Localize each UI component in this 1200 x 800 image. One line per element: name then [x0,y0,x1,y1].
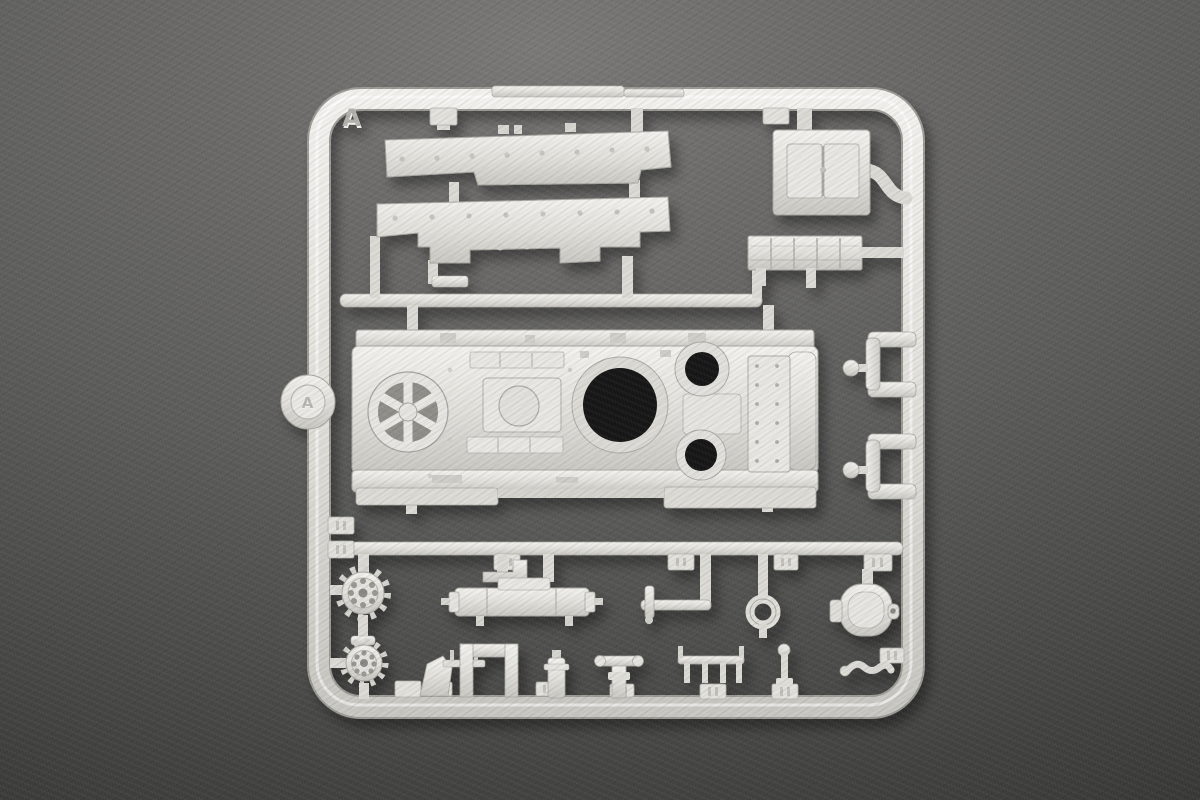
muffler-pipe [594,598,603,605]
s-curve-runner [866,170,906,198]
crank-arm-vertical [700,554,711,606]
clamp-back [866,440,880,492]
crank-pin-end [645,616,653,624]
post-collar [776,678,793,685]
rack-bar [678,656,744,664]
fender-lower-body [377,197,670,263]
towing-eye-stem [758,554,768,600]
stub [407,305,418,333]
pin-rack-part [678,646,744,683]
clamp-knob [843,360,859,376]
fender-part-lower [377,197,670,263]
blank-tab [763,108,789,124]
muffler-body [455,588,589,616]
frame-letter: A [342,104,362,132]
wavy-rod [847,664,891,671]
runner-mid-upper [340,294,762,307]
cylinder-part [544,650,569,698]
deck-strip [467,437,563,453]
stub [358,615,368,639]
periscope-post [612,664,626,698]
towing-eye-part [750,554,776,638]
idler-fan-wheel [368,372,448,452]
staple-left-leg [460,644,473,697]
stub [359,683,369,699]
stub [756,268,766,286]
deck-strip [470,352,564,368]
muffler-pipe [441,598,450,605]
disc-letter: A [302,394,315,412]
muffler-leg [476,616,484,626]
l-piece [432,276,468,287]
rack-pins [684,663,742,683]
fender-part-upper [385,123,671,185]
hull-skirt-right [664,487,816,508]
hatch-knob [820,167,826,173]
hatch-box-part [773,130,870,215]
hull-top-rail [356,330,814,348]
bolt-stub [497,244,504,251]
stub [631,108,643,134]
clamp-back [866,338,880,390]
sprocket-hub-hole [360,659,368,667]
sprue-a: A A A A [281,86,916,707]
periscope-cap [595,656,606,667]
deck-hatch-round [499,386,539,426]
opening-link-plate [683,394,741,434]
hull-rear-tip [788,352,816,470]
clamp-knob [843,462,859,478]
photo-background: A A A A [0,0,1200,800]
crank-cross-pin [645,586,654,618]
stub [763,305,774,333]
ball-post-part [776,644,793,686]
periscope-collar [608,672,630,680]
cap-drum-part [830,569,899,636]
wavy-fitting-part [840,664,891,676]
opening-hole-upper [685,352,719,386]
turret-ring-hole [583,368,657,442]
periscope-part [595,656,644,699]
wing-pin [450,650,454,660]
muffler-leg [565,616,573,626]
stub [622,256,633,298]
blank-tab [430,108,457,125]
grille-body [748,236,862,270]
muffler-part [441,554,603,626]
muffler-cap-left [449,592,459,612]
fender-upper-body [385,131,671,185]
rack-hook [678,646,683,658]
fender-pin [514,125,522,134]
hull-part [352,330,818,508]
sprocket-hub-hole [359,589,368,598]
hull-rear-plate [748,356,790,472]
stub [370,236,380,298]
periscope-cap [633,656,644,667]
stub [806,268,816,288]
vent-grille-part [748,236,904,288]
fender-pin [498,125,509,134]
sprue-disc: A A [281,375,335,429]
hull-skirt-left [356,488,498,505]
staple-right-leg [505,644,518,697]
opening-hole-lower [685,439,717,471]
frame-molded-strip [492,86,624,97]
towing-eye-foot [759,624,767,638]
rack-hook [739,646,744,658]
sprue-photo: A A A A [0,0,1200,800]
drum-face [848,592,884,628]
hull-skirt-mid [498,489,664,498]
fender-pin [565,123,576,132]
cylinder-flange [544,664,569,670]
frame-molded-strip-2 [624,89,684,97]
drum-side-tab [830,600,842,622]
bolt-stub [524,243,531,250]
staple-part [460,644,518,697]
hatch-door-left [787,144,822,198]
muffler-cap-right [585,592,595,612]
drum-lug-hole [890,608,896,614]
hatch-door-right [824,144,859,198]
runner-mid-lower [330,542,903,555]
muffler-saddle [498,578,550,590]
sprocket-wheel-1 [330,554,387,645]
stub [860,247,904,258]
